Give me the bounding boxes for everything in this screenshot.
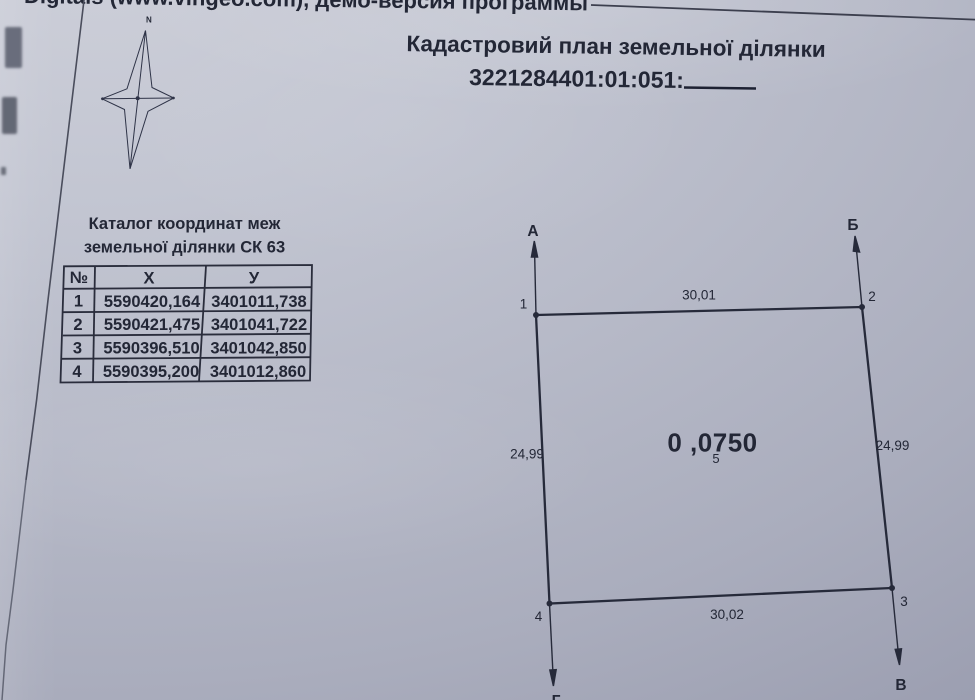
svg-text:1: 1 bbox=[520, 297, 528, 312]
svg-text:X: X bbox=[143, 270, 154, 288]
svg-text:Кадастровий план земельної діл: Кадастровий план земельної ділянки bbox=[406, 31, 826, 62]
svg-text:5: 5 bbox=[712, 451, 719, 466]
svg-text:3401041,722: 3401041,722 bbox=[211, 316, 307, 334]
svg-text:В: В bbox=[895, 677, 906, 694]
svg-text:А: А bbox=[527, 223, 538, 240]
svg-text:2: 2 bbox=[73, 316, 82, 334]
svg-text:3401011,738: 3401011,738 bbox=[211, 293, 306, 311]
svg-text:Каталог координат меж: Каталог координат меж bbox=[89, 215, 281, 233]
svg-text:Digitals (www.vingeo.com), дем: Digitals (www.vingeo.com), демо-версия п… bbox=[24, 0, 588, 15]
svg-text:2: 2 bbox=[868, 289, 876, 304]
svg-text:3: 3 bbox=[900, 594, 908, 609]
svg-text:3401042,850: 3401042,850 bbox=[210, 339, 306, 357]
svg-text:№: № bbox=[70, 269, 88, 287]
svg-text:3401012,860: 3401012,860 bbox=[210, 363, 306, 381]
svg-text:30,02: 30,02 bbox=[710, 607, 744, 622]
svg-text:Г: Г bbox=[552, 693, 561, 700]
svg-text:5590396,510: 5590396,510 bbox=[103, 339, 199, 357]
svg-text:земельної ділянки СК 63: земельної ділянки СК 63 bbox=[84, 239, 285, 257]
svg-text:1: 1 bbox=[74, 293, 83, 311]
svg-text:У: У bbox=[249, 270, 260, 288]
svg-text:24,99: 24,99 bbox=[876, 438, 910, 453]
svg-text:4: 4 bbox=[72, 363, 82, 381]
svg-text:3: 3 bbox=[73, 339, 82, 357]
svg-text:5590421,475: 5590421,475 bbox=[104, 316, 200, 334]
svg-text:N: N bbox=[146, 16, 152, 25]
svg-text:5590395,200: 5590395,200 bbox=[103, 363, 199, 381]
svg-text:4: 4 bbox=[535, 609, 543, 624]
svg-text:3221284401:01:051:: 3221284401:01:051: bbox=[469, 64, 684, 93]
svg-text:5590420,164: 5590420,164 bbox=[104, 293, 201, 311]
svg-text:30,01: 30,01 bbox=[682, 288, 716, 303]
svg-text:Б: Б bbox=[847, 217, 858, 234]
svg-text:24,99: 24,99 bbox=[510, 447, 544, 462]
